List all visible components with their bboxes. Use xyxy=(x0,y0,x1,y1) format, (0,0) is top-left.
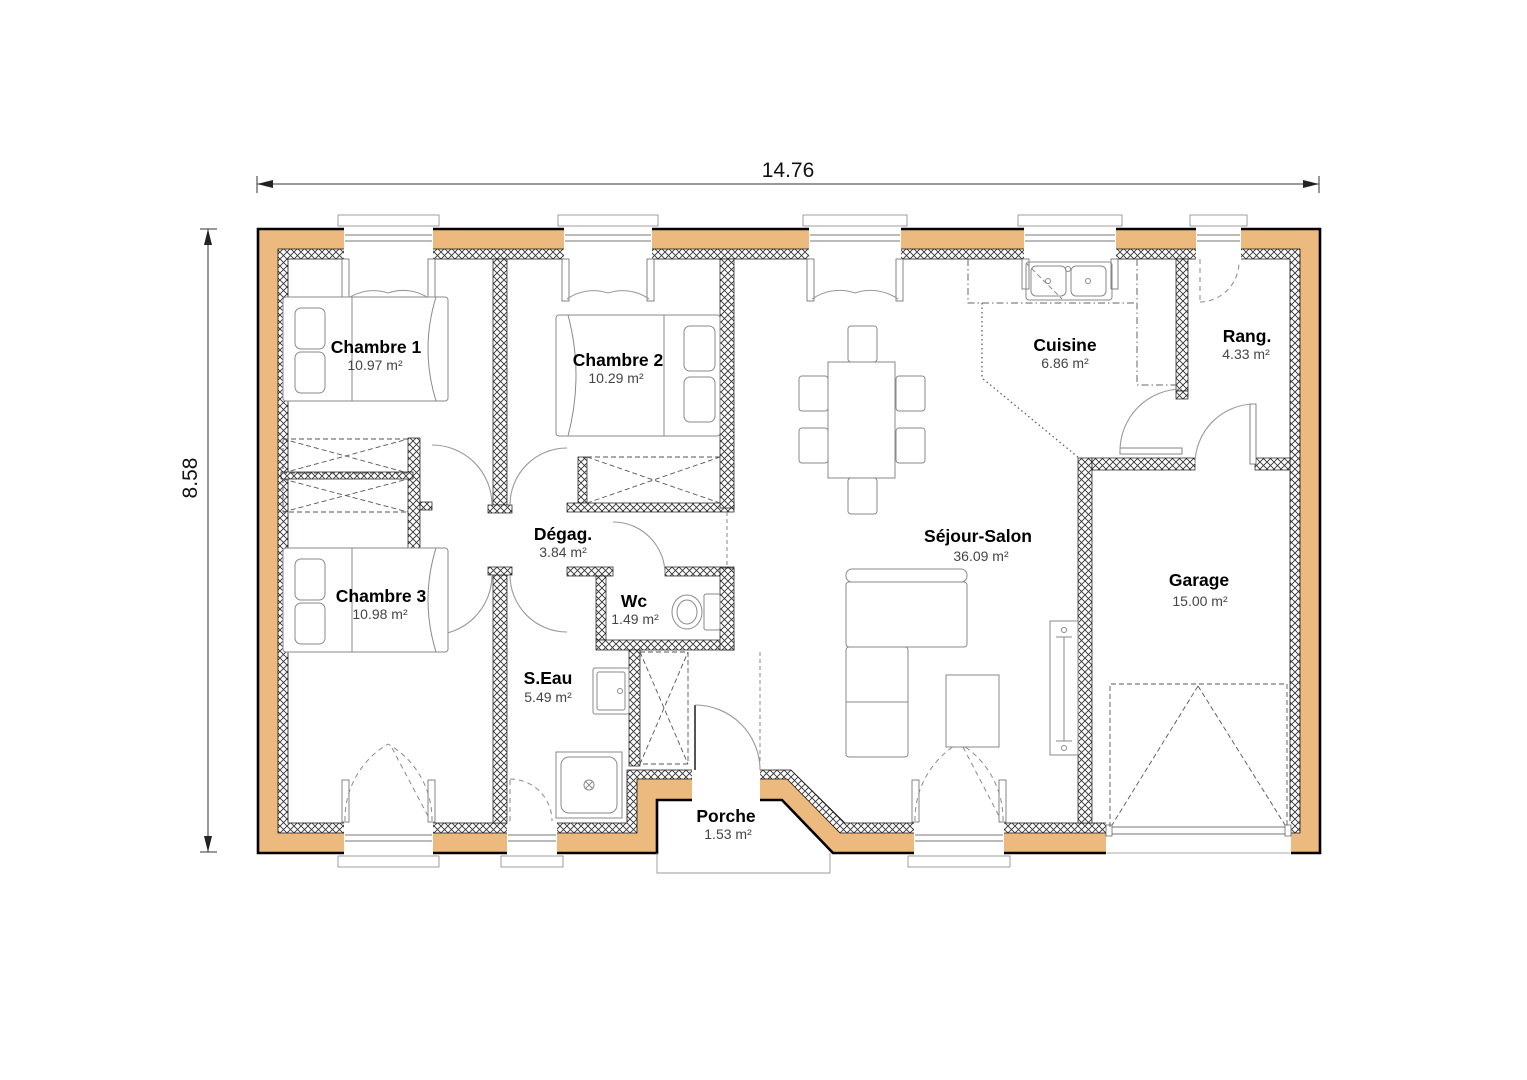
windows xyxy=(338,215,1291,873)
toilet-symbol xyxy=(672,594,720,630)
garage-door-symbol xyxy=(1106,684,1291,856)
room-area-chambre1: 10.97 m² xyxy=(347,357,403,373)
room-label-salle-eau: S.Eau xyxy=(524,668,573,688)
radiator-symbol xyxy=(1050,621,1078,755)
dining-table-symbol xyxy=(799,326,925,514)
width-dimension-label: 14.76 xyxy=(762,159,815,182)
door-chambre1 xyxy=(432,445,492,505)
room-label-chambre2: Chambre 2 xyxy=(573,350,664,370)
floor-plan-drawing: 14.76 8.58 xyxy=(0,0,1527,1080)
window-salle-eau xyxy=(501,779,563,867)
room-label-sejour: Séjour-Salon xyxy=(924,526,1032,546)
room-label-garage: Garage xyxy=(1169,570,1230,590)
room-label-wc: Wc xyxy=(621,591,648,611)
entry-door xyxy=(692,705,760,802)
dimension-arrow-up-icon xyxy=(204,229,212,245)
room-label-porche: Porche xyxy=(696,806,756,826)
dimension-arrow-down-icon xyxy=(204,836,212,852)
room-area-chambre3: 10.98 m² xyxy=(352,606,408,622)
room-area-degagement: 3.84 m² xyxy=(539,544,587,560)
window-sejour-top xyxy=(803,215,907,301)
dimension-top: 14.76 xyxy=(257,159,1319,193)
porch-slab xyxy=(657,853,830,873)
room-label-chambre3: Chambre 3 xyxy=(336,586,427,606)
room-area-garage: 15.00 m² xyxy=(1172,593,1228,609)
dimension-arrow-right-icon xyxy=(1303,180,1319,188)
washbasin-symbol xyxy=(593,668,629,714)
floor-plan-page: 14.76 8.58 xyxy=(0,0,1527,1080)
room-area-porche: 1.53 m² xyxy=(704,826,752,842)
wardrobe-chambre2 xyxy=(587,457,720,503)
kitchen-boundary-dotted xyxy=(982,303,1079,458)
room-area-salle-eau: 5.49 m² xyxy=(524,689,572,705)
kitchen-double-sink-symbol xyxy=(1026,262,1112,300)
room-label-degagement: Dégag. xyxy=(534,524,592,544)
window-chambre3 xyxy=(338,744,439,867)
room-area-chambre2: 10.29 m² xyxy=(588,370,644,386)
door-cuisine-hall xyxy=(1120,389,1182,454)
window-chambre2 xyxy=(558,215,658,301)
door-chambre2 xyxy=(510,448,567,505)
room-area-cuisine: 6.86 m² xyxy=(1041,355,1089,371)
door-rangement-garage xyxy=(1195,404,1256,464)
shower-symbol xyxy=(556,752,622,818)
window-chambre1 xyxy=(338,215,439,301)
wardrobe-chambre3 xyxy=(283,479,408,512)
dimension-left: 8.58 xyxy=(179,229,217,852)
height-dimension-label: 8.58 xyxy=(179,458,202,499)
room-area-wc: 1.49 m² xyxy=(611,611,659,627)
wardrobe-chambre1 xyxy=(283,439,408,473)
room-label-rangement: Rang. xyxy=(1223,326,1272,346)
window-sejour-bottom xyxy=(908,743,1010,867)
room-label-chambre1: Chambre 1 xyxy=(331,337,422,357)
wardrobe-entree xyxy=(640,652,688,764)
room-area-rangement: 4.33 m² xyxy=(1222,346,1270,362)
room-area-sejour: 36.09 m² xyxy=(953,548,1009,564)
door-salle-eau xyxy=(510,575,567,632)
room-label-cuisine: Cuisine xyxy=(1033,335,1096,355)
door-wc xyxy=(613,522,665,574)
window-rangement xyxy=(1190,215,1247,302)
coffee-table-symbol xyxy=(946,675,999,747)
dimension-arrow-left-icon xyxy=(257,180,273,188)
